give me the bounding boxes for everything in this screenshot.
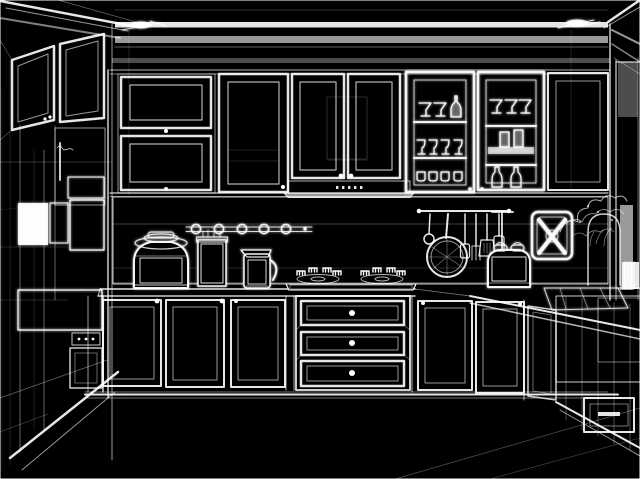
microwave-upper-icon bbox=[18, 203, 48, 245]
kitchen-wireframe-canvas bbox=[0, 0, 640, 479]
toaster bbox=[488, 243, 530, 288]
wireframe-kitchen-render bbox=[0, 0, 640, 479]
